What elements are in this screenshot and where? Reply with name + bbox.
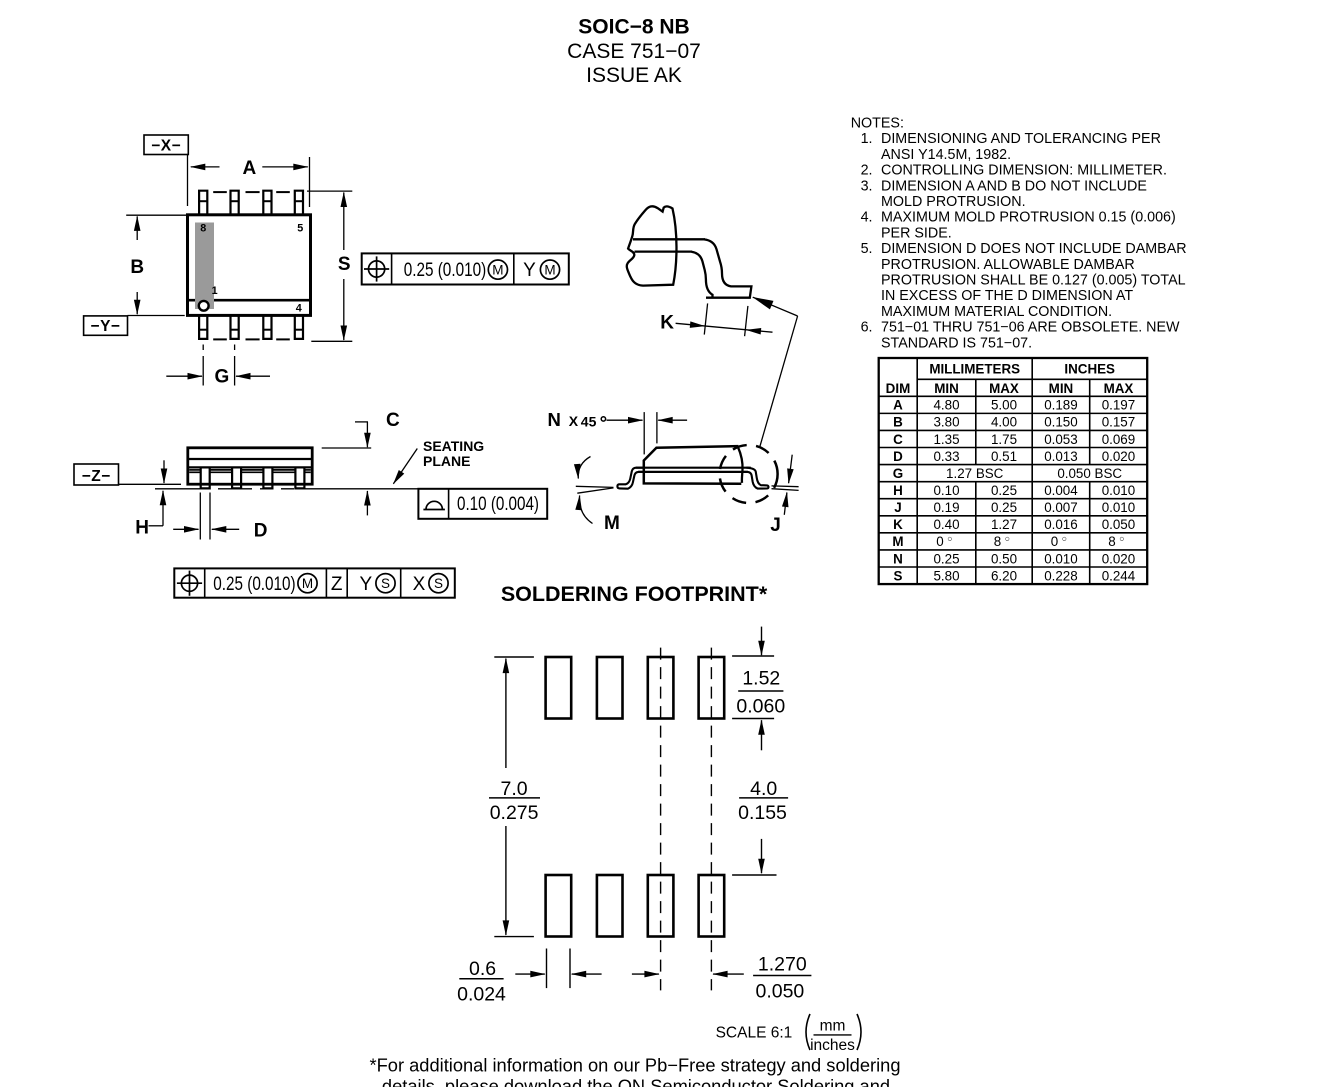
svg-text:5.: 5. — [861, 241, 873, 257]
svg-text:1.52: 1.52 — [742, 668, 780, 690]
svg-text:3.80: 3.80 — [933, 415, 959, 430]
svg-text:X: X — [413, 574, 426, 595]
svg-text:0.157: 0.157 — [1102, 415, 1136, 430]
svg-text:M: M — [492, 263, 503, 278]
svg-text:0.25: 0.25 — [991, 483, 1017, 498]
svg-text:S: S — [434, 576, 443, 591]
svg-text:1.27: 1.27 — [991, 517, 1017, 532]
svg-text:0.25: 0.25 — [933, 551, 959, 566]
svg-text:CONTROLLING DIMENSION: MILLIME: CONTROLLING DIMENSION: MILLIMETER. — [881, 163, 1167, 179]
svg-text:MILLIMETERS: MILLIMETERS — [929, 362, 1020, 377]
svg-text:S: S — [893, 568, 902, 583]
svg-text:IN EXCESS OF THE D DIMENSION A: IN EXCESS OF THE D DIMENSION AT — [881, 288, 1133, 304]
svg-text:4.80: 4.80 — [933, 398, 959, 413]
svg-text:0.10 (0.004): 0.10 (0.004) — [457, 494, 539, 515]
svg-text:H: H — [135, 518, 149, 539]
svg-text:7.0: 7.0 — [501, 778, 528, 800]
svg-text:NOTES:: NOTES: — [851, 116, 904, 132]
svg-text:0.020: 0.020 — [1102, 449, 1136, 464]
svg-text:0.275: 0.275 — [490, 802, 539, 824]
svg-text:G: G — [893, 466, 903, 481]
svg-text:−Y−: −Y− — [91, 318, 121, 335]
svg-text:6.20: 6.20 — [991, 568, 1017, 583]
svg-text:DIMENSIONING AND TOLERANCING P: DIMENSIONING AND TOLERANCING PER — [881, 131, 1161, 147]
svg-text:details, please download the O: details, please download the ON Semicond… — [382, 1076, 890, 1087]
svg-text:N: N — [548, 409, 561, 430]
svg-text:*For additional information on: *For additional information on our Pb−Fr… — [370, 1055, 901, 1076]
svg-text:5.80: 5.80 — [933, 568, 959, 583]
svg-text:MAX: MAX — [989, 381, 1019, 396]
svg-text:M: M — [892, 534, 903, 549]
svg-text:0.25 (0.010): 0.25 (0.010) — [213, 574, 295, 595]
svg-text:SOLDERING FOOTPRINT*: SOLDERING FOOTPRINT* — [501, 582, 768, 606]
svg-text:H: H — [893, 483, 903, 498]
svg-text:4.0: 4.0 — [750, 778, 777, 800]
svg-text:3.: 3. — [861, 178, 873, 194]
svg-text:J: J — [894, 500, 901, 515]
svg-text:0.6: 0.6 — [469, 958, 496, 980]
svg-text:0.010: 0.010 — [1102, 500, 1136, 515]
svg-text:M: M — [544, 263, 555, 278]
svg-text:6.: 6. — [861, 320, 873, 336]
svg-text:K: K — [893, 517, 903, 532]
svg-text:0.050: 0.050 — [1102, 517, 1136, 532]
svg-text:0.020: 0.020 — [1102, 551, 1136, 566]
svg-text:Y: Y — [360, 574, 373, 595]
svg-text:1: 1 — [212, 285, 218, 297]
svg-text:0.228: 0.228 — [1044, 568, 1078, 583]
svg-text:STANDARD IS 751−07.: STANDARD IS 751−07. — [881, 335, 1032, 351]
svg-text:0.244: 0.244 — [1102, 568, 1136, 583]
svg-text:PLANE: PLANE — [423, 453, 470, 469]
svg-text:C: C — [893, 432, 903, 447]
svg-text:5: 5 — [297, 223, 303, 235]
svg-text:K: K — [660, 313, 674, 334]
svg-text:0.004: 0.004 — [1044, 483, 1078, 498]
svg-text:0.053: 0.053 — [1044, 432, 1078, 447]
svg-text:−X−: −X− — [151, 137, 181, 154]
svg-text:0.007: 0.007 — [1044, 500, 1078, 515]
svg-text:SOIC−8 NB: SOIC−8 NB — [578, 16, 689, 39]
svg-text:0.51: 0.51 — [991, 449, 1017, 464]
svg-text:0.016: 0.016 — [1044, 517, 1078, 532]
svg-text:1.35: 1.35 — [933, 432, 959, 447]
svg-text:X: X — [569, 413, 579, 429]
svg-text:D: D — [893, 449, 903, 464]
svg-text:DIMENSION D DOES NOT INCLUDE D: DIMENSION D DOES NOT INCLUDE DAMBAR — [881, 241, 1187, 257]
svg-text:0.10: 0.10 — [933, 483, 959, 498]
svg-text:5.00: 5.00 — [991, 398, 1017, 413]
svg-text:4.: 4. — [861, 210, 873, 226]
svg-text:4.00: 4.00 — [991, 415, 1017, 430]
svg-text:A: A — [243, 158, 257, 179]
svg-text:MAXIMUM MATERIAL CONDITION.: MAXIMUM MATERIAL CONDITION. — [881, 304, 1112, 320]
svg-text:MAXIMUM MOLD PROTRUSION 0.15 (: MAXIMUM MOLD PROTRUSION 0.15 (0.006) — [881, 210, 1176, 226]
svg-text:CASE 751−07: CASE 751−07 — [567, 40, 701, 63]
svg-text:8: 8 — [200, 223, 206, 235]
svg-text:INCHES: INCHES — [1064, 362, 1115, 377]
svg-text:M: M — [604, 513, 620, 534]
svg-text:G: G — [215, 367, 230, 388]
svg-text:0.33: 0.33 — [933, 449, 959, 464]
svg-text:0.197: 0.197 — [1102, 398, 1136, 413]
svg-text:Z: Z — [331, 574, 343, 595]
svg-text:inches: inches — [810, 1037, 855, 1054]
svg-text:−Z−: −Z− — [82, 468, 111, 485]
svg-text:0.050 BSC: 0.050 BSC — [1057, 466, 1122, 481]
svg-text:0.050: 0.050 — [755, 981, 804, 1003]
svg-text:DIMENSION A AND B DO NOT INCLU: DIMENSION A AND B DO NOT INCLUDE — [881, 178, 1147, 194]
svg-text:C: C — [386, 410, 400, 431]
svg-text:S: S — [338, 254, 351, 275]
svg-text:M: M — [302, 576, 313, 591]
svg-text:B: B — [893, 415, 903, 430]
svg-text:1.: 1. — [861, 131, 873, 147]
svg-text:2.: 2. — [861, 163, 873, 179]
svg-text:0.50: 0.50 — [991, 551, 1017, 566]
svg-text:0.024: 0.024 — [457, 984, 506, 1006]
svg-text:DIM: DIM — [886, 381, 911, 396]
svg-text:0.25 (0.010): 0.25 (0.010) — [404, 260, 487, 281]
svg-text:J: J — [770, 515, 781, 536]
svg-text:PROTRUSION. ALLOWABLE DAMBAR: PROTRUSION. ALLOWABLE DAMBAR — [881, 257, 1135, 273]
svg-text:MIN: MIN — [934, 381, 959, 396]
svg-text:0.40: 0.40 — [933, 517, 959, 532]
svg-text:N: N — [893, 551, 903, 566]
svg-text:ANSI Y14.5M, 1982.: ANSI Y14.5M, 1982. — [881, 147, 1011, 163]
svg-text:A: A — [893, 398, 903, 413]
svg-text:1.75: 1.75 — [991, 432, 1017, 447]
svg-text:MOLD PROTRUSION.: MOLD PROTRUSION. — [881, 194, 1026, 210]
svg-text:SCALE 6:1: SCALE 6:1 — [716, 1025, 793, 1042]
svg-text:MIN: MIN — [1049, 381, 1074, 396]
svg-text:1.27 BSC: 1.27 BSC — [946, 466, 1004, 481]
svg-text:0.060: 0.060 — [736, 696, 785, 718]
svg-text:MAX: MAX — [1104, 381, 1134, 396]
svg-text:0.010: 0.010 — [1102, 483, 1136, 498]
svg-text:SEATING: SEATING — [423, 438, 484, 454]
svg-text:D: D — [254, 521, 268, 542]
svg-text:ISSUE AK: ISSUE AK — [586, 64, 682, 87]
svg-text:mm: mm — [820, 1018, 846, 1035]
svg-text:45: 45 — [581, 413, 597, 429]
svg-text:0.189: 0.189 — [1044, 398, 1078, 413]
svg-text:0.155: 0.155 — [738, 802, 787, 824]
svg-text:751−01 THRU 751−06 ARE OBSOLET: 751−01 THRU 751−06 ARE OBSOLETE. NEW — [881, 320, 1180, 336]
svg-text:0.010: 0.010 — [1044, 551, 1078, 566]
svg-text:0.19: 0.19 — [933, 500, 959, 515]
svg-text:B: B — [130, 257, 144, 278]
svg-text:1.270: 1.270 — [758, 954, 807, 976]
svg-text:Y: Y — [523, 260, 536, 281]
svg-text:0.150: 0.150 — [1044, 415, 1078, 430]
svg-text:S: S — [381, 576, 390, 591]
svg-text:0.013: 0.013 — [1044, 449, 1078, 464]
svg-text:PER SIDE.: PER SIDE. — [881, 225, 952, 241]
svg-text:PROTRUSION SHALL BE 0.127 (0.0: PROTRUSION SHALL BE 0.127 (0.005) TOTAL — [881, 273, 1186, 289]
svg-text:0.069: 0.069 — [1102, 432, 1136, 447]
svg-text:4: 4 — [296, 303, 302, 315]
svg-text:0.25: 0.25 — [991, 500, 1017, 515]
